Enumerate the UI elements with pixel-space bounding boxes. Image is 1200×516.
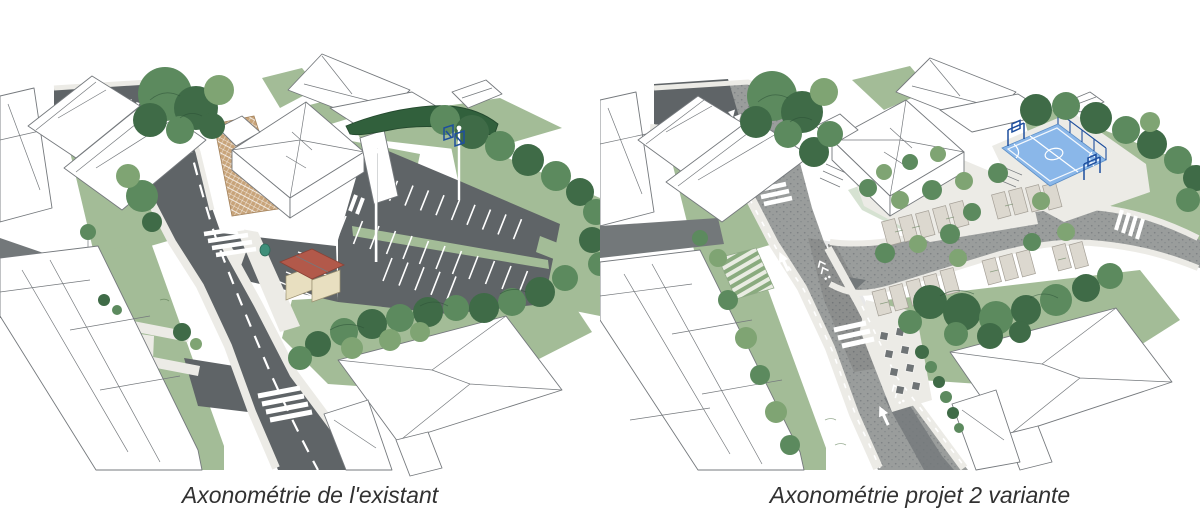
panel-existing: Axonométrie de l'existant (0, 0, 600, 516)
panel-project-variant-2: Axonométrie projet 2 variante (600, 0, 1200, 516)
axonometric-illustration-existing (0, 0, 600, 478)
waste-bin (260, 244, 270, 256)
axonometric-illustration-project-variant-2 (600, 0, 1200, 478)
comparison-figure: Axonométrie de l'existant (0, 0, 1200, 516)
caption-existing: Axonométrie de l'existant (10, 482, 610, 509)
caption-project-variant-2: Axonométrie projet 2 variante (620, 482, 1200, 509)
